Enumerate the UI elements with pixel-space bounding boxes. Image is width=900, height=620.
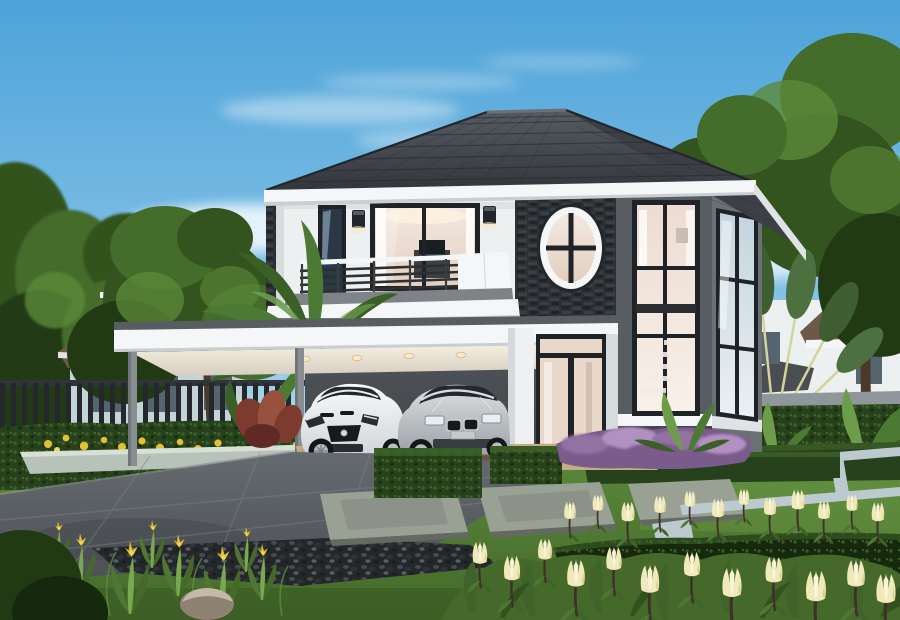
oval-window bbox=[537, 204, 605, 292]
wall-sconce-left bbox=[350, 210, 366, 234]
sedan-headlight-left bbox=[425, 416, 444, 425]
house-rendering-canvas bbox=[0, 0, 900, 620]
sports-badge bbox=[341, 430, 347, 436]
right-wing bbox=[616, 193, 762, 456]
rock bbox=[180, 588, 234, 620]
sedan-grille-right bbox=[464, 419, 478, 430]
tall-corner-window-side bbox=[716, 208, 758, 422]
stone-feature-wall bbox=[515, 193, 616, 323]
wall-sconce-right bbox=[481, 206, 497, 230]
tall-corner-window-front bbox=[632, 200, 700, 416]
sedan-plate bbox=[451, 431, 475, 439]
sedan-grille-left bbox=[447, 420, 461, 431]
sedan-headlight-right bbox=[482, 414, 501, 423]
rendered-image: Daytime photorealistic rendering of a mo… bbox=[0, 0, 900, 620]
